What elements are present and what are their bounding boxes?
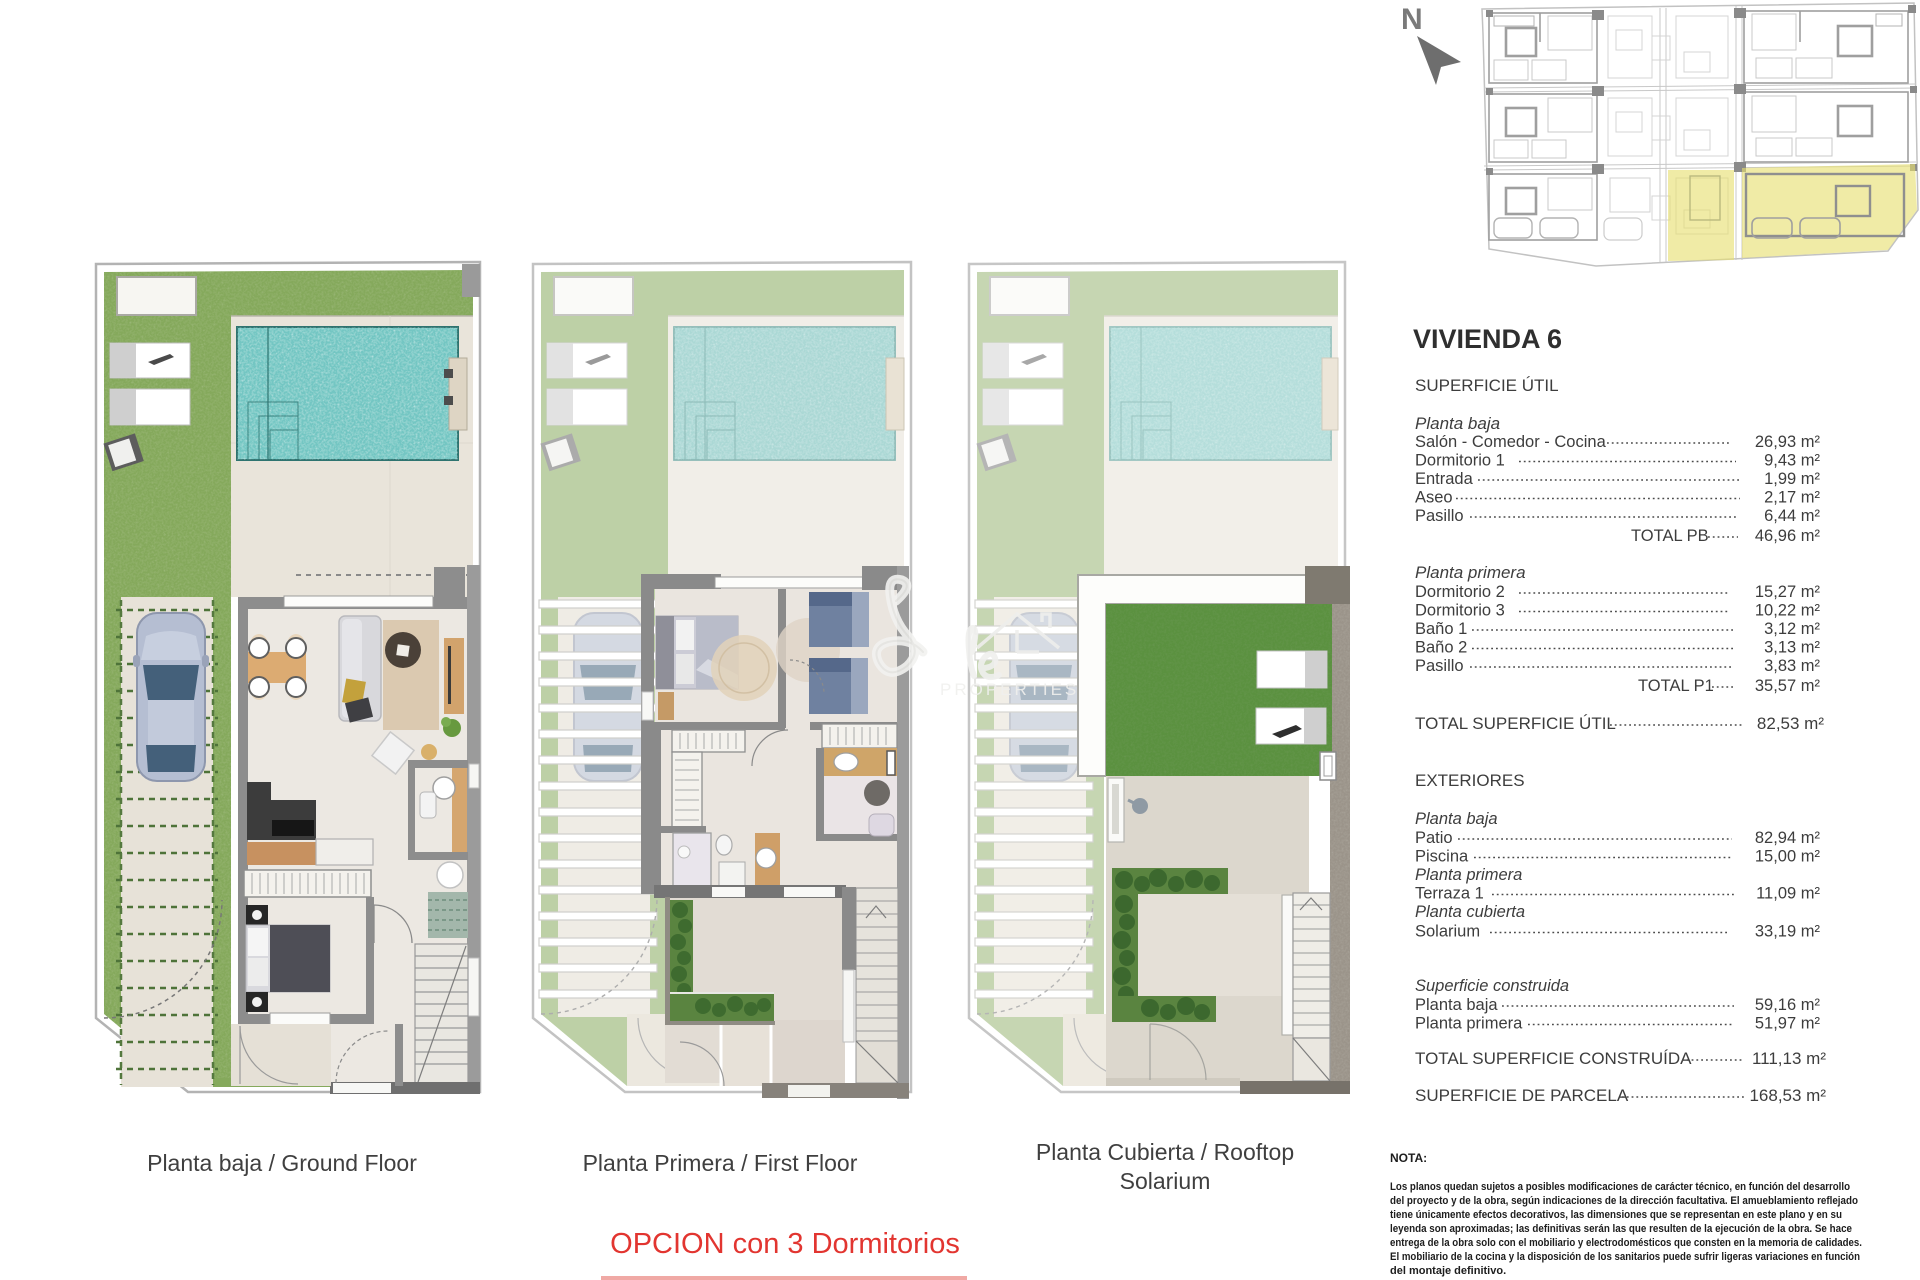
svg-text:Pasillo: Pasillo	[1415, 507, 1464, 525]
svg-text:Dormitorio 1: Dormitorio 1	[1415, 452, 1505, 470]
svg-text:SUPERFICIE ÚTIL: SUPERFICIE ÚTIL	[1415, 376, 1559, 395]
svg-text:Aseo: Aseo	[1415, 489, 1453, 507]
svg-text:3,13 m²: 3,13 m²	[1764, 639, 1820, 657]
svg-text:2,17 m²: 2,17 m²	[1764, 489, 1820, 507]
svg-text:51,97 m²: 51,97 m²	[1755, 1015, 1821, 1033]
svg-text:Planta baja: Planta baja	[1415, 414, 1500, 433]
svg-text:TOTAL P1: TOTAL P1	[1638, 677, 1714, 695]
svg-text:TOTAL SUPERFICIE ÚTIL: TOTAL SUPERFICIE ÚTIL	[1415, 714, 1616, 733]
svg-text:Baño 2: Baño 2	[1415, 639, 1467, 657]
svg-text:35,57 m²: 35,57 m²	[1755, 677, 1821, 695]
svg-text:Planta primera: Planta primera	[1415, 1015, 1523, 1033]
svg-text:Terraza 1: Terraza 1	[1415, 885, 1484, 903]
svg-text:NOTA:: NOTA:	[1390, 1151, 1427, 1165]
svg-text:3,12 m²: 3,12 m²	[1764, 620, 1820, 638]
svg-text:N: N	[1401, 3, 1423, 36]
svg-text:168,53 m²: 168,53 m²	[1749, 1086, 1826, 1105]
svg-text:111,13 m²: 111,13 m²	[1752, 1049, 1826, 1068]
svg-text:Planta primera: Planta primera	[1415, 866, 1522, 884]
svg-text:SUPERFICIE DE PARCELA: SUPERFICIE DE PARCELA	[1415, 1086, 1629, 1105]
svg-text:Planta Primera / First Floor: Planta Primera / First Floor	[583, 1150, 858, 1176]
svg-text:Solarium: Solarium	[1120, 1168, 1211, 1194]
svg-text:Dormitorio 2: Dormitorio 2	[1415, 583, 1505, 601]
svg-text:Planta primera: Planta primera	[1415, 563, 1526, 582]
svg-text:Pasillo: Pasillo	[1415, 657, 1464, 675]
svg-text:26,93 m²: 26,93 m²	[1755, 433, 1821, 451]
svg-text:Planta baja: Planta baja	[1415, 810, 1498, 828]
svg-text:59,16 m²: 59,16 m²	[1755, 996, 1821, 1014]
svg-text:1,99 m²: 1,99 m²	[1764, 470, 1820, 488]
svg-text:Piscina: Piscina	[1415, 848, 1469, 866]
svg-text:9,43 m²: 9,43 m²	[1764, 452, 1820, 470]
svg-text:del montaje definitivo.: del montaje definitivo.	[1390, 1265, 1506, 1277]
svg-text:Solarium: Solarium	[1415, 923, 1480, 941]
svg-text:Los planos quedan sujetos a po: Los planos quedan sujetos a posibles mod…	[1390, 1181, 1850, 1193]
svg-text:Planta baja: Planta baja	[1415, 996, 1498, 1014]
svg-text:Planta Cubierta / Rooftop: Planta Cubierta / Rooftop	[1036, 1139, 1294, 1165]
svg-text:del proyecto y de la obra, seg: del proyecto y de la obra, según indicac…	[1390, 1195, 1858, 1207]
svg-text:tiene únicamente efectos decor: tiene únicamente efectos decorativos, la…	[1390, 1209, 1842, 1221]
svg-text:82,94 m²: 82,94 m²	[1755, 829, 1821, 847]
svg-text:Salón - Comedor - Cocina: Salón - Comedor - Cocina	[1415, 433, 1607, 451]
svg-text:VIVIENDA 6: VIVIENDA 6	[1413, 324, 1562, 354]
svg-text:15,00 m²: 15,00 m²	[1755, 848, 1821, 866]
svg-text:15,27 m²: 15,27 m²	[1755, 583, 1821, 601]
svg-text:leyenda son aproximadas; las d: leyenda son aproximadas; las definitivas…	[1390, 1223, 1852, 1235]
svg-text:Baño 1: Baño 1	[1415, 620, 1467, 638]
svg-text:82,53 m²: 82,53 m²	[1757, 714, 1824, 733]
svg-text:6,44 m²: 6,44 m²	[1764, 507, 1820, 525]
svg-text:10,22 m²: 10,22 m²	[1755, 602, 1821, 620]
svg-text:Dormitorio 3: Dormitorio 3	[1415, 602, 1505, 620]
svg-text:PROPERTIES: PROPERTIES	[940, 680, 1079, 699]
svg-text:OPCION con 3 Dormitorios: OPCION con 3 Dormitorios	[610, 1228, 960, 1260]
svg-text:EXTERIORES: EXTERIORES	[1415, 771, 1525, 790]
svg-text:Entrada: Entrada	[1415, 470, 1474, 488]
svg-text:46,96 m²: 46,96 m²	[1755, 527, 1821, 545]
svg-text:Superficie construida: Superficie construida	[1415, 977, 1569, 995]
svg-text:11,09 m²: 11,09 m²	[1756, 885, 1820, 903]
svg-text:El mobiliario de la cocina y l: El mobiliario de la cocina y la disposic…	[1390, 1251, 1860, 1263]
svg-text:3,83 m²: 3,83 m²	[1764, 657, 1820, 675]
svg-text:Patio: Patio	[1415, 829, 1453, 847]
svg-text:entrega de la obra solo con el: entrega de la obra solo con el mobiliari…	[1390, 1237, 1862, 1249]
svg-text:TOTAL SUPERFICIE CONSTRUÍDA: TOTAL SUPERFICIE CONSTRUÍDA	[1415, 1049, 1692, 1068]
svg-text:TOTAL PB: TOTAL PB	[1631, 527, 1709, 545]
svg-text:Planta cubierta: Planta cubierta	[1415, 903, 1525, 921]
svg-text:33,19 m²: 33,19 m²	[1755, 923, 1821, 941]
svg-text:Planta baja / Ground Floor: Planta baja / Ground Floor	[147, 1150, 417, 1176]
